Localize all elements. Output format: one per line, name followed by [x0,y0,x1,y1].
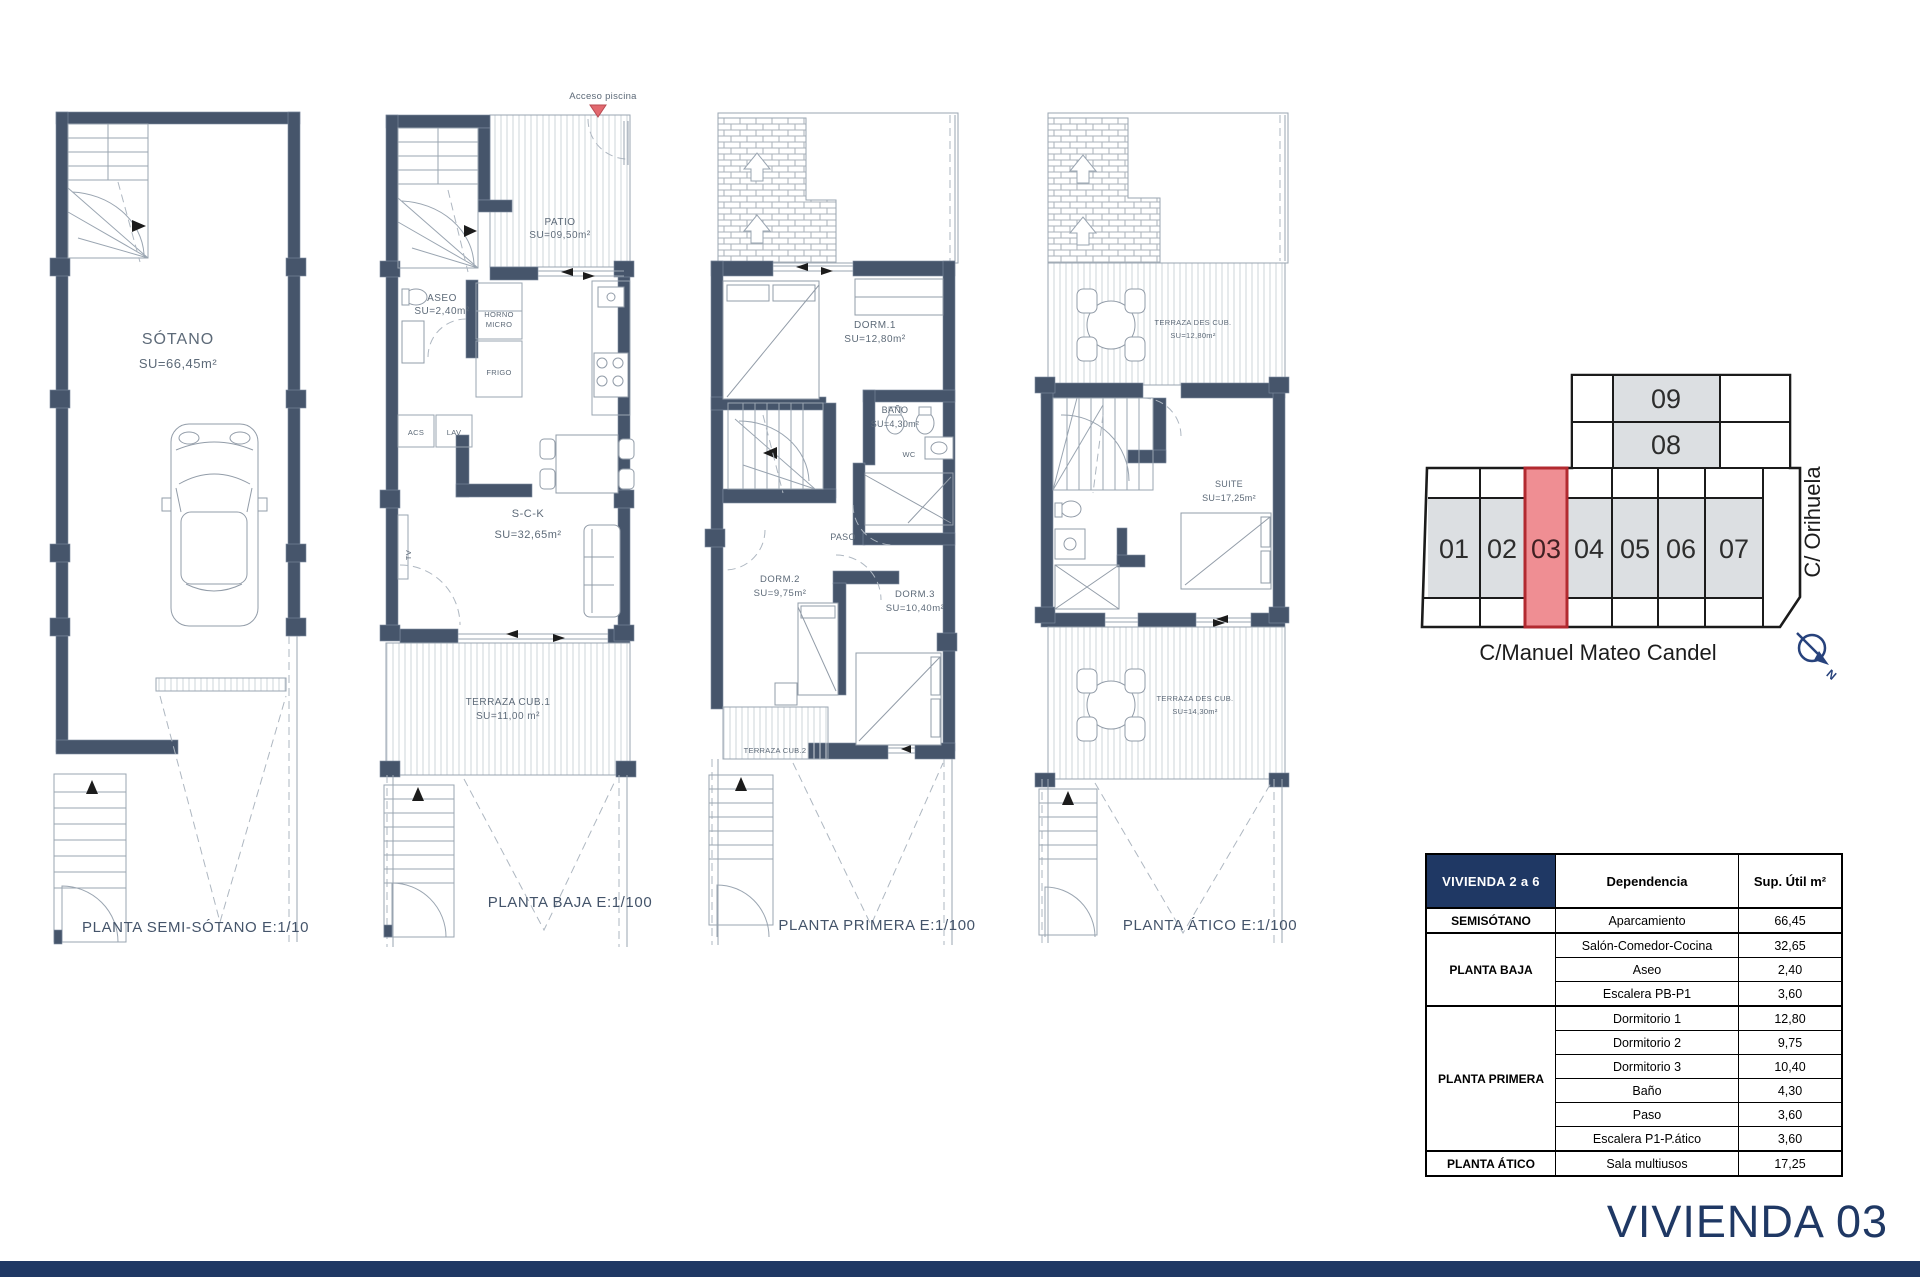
room-label-terraza-inf: TERRAZA DES CUB. [1157,694,1234,703]
room-label-suite: SUITE [1215,479,1243,489]
room-cell: Sala multiusos [1556,1151,1739,1176]
ramp-zone [384,775,627,947]
floor-name-cell: PLANTA PRIMERA [1426,1006,1556,1151]
room-cell: Dormitorio 1 [1556,1006,1739,1031]
room-area-terraza1: SU=11,00 m² [476,711,540,722]
plan-caption-baja: PLANTA BAJA E:1/100 [488,894,653,911]
project-title: VIVIENDA 03 [1607,1196,1888,1248]
floorplan-baja: Acceso piscina PATIO SU=09,50m² ASEO SU=… [378,85,668,965]
area-cell: 3,60 [1739,1127,1843,1152]
room-area-dorm3: SU=10,40m² [886,603,945,614]
area-cell: 17,25 [1739,1151,1843,1176]
dorm3-furniture [856,653,941,745]
room-cell: Salón-Comedor-Cocina [1556,933,1739,958]
label-acs: ACS [408,428,424,437]
room-area-sotano: SU=66,45m² [139,356,218,371]
label-wc: WC [902,450,915,459]
room-label-terraza1: TERRAZA CUB.1 [466,697,551,708]
area-cell: 66,45 [1739,908,1843,933]
room-label-dorm1: DORM.1 [854,320,896,331]
plan-caption-primera: PLANTA PRIMERA E:1/100 [778,917,975,934]
terraza-cub1 [380,643,636,777]
areas-table: VIVIENDA 2 a 6 Dependencia Sup. Útil m² … [1425,853,1843,1177]
kitchen [476,281,630,415]
unit-number-02: 02 [1487,534,1517,564]
unit-number-09: 09 [1651,384,1681,414]
stairs [1053,398,1153,493]
floorplan-primera: DORM.1 SU=12,80m² WC BAÑO SU=4,30m² PASO… [703,85,993,965]
stairs-upper [68,124,148,262]
room-label-terraza2: TERRAZA CUB.2 [744,746,807,755]
unit-number-01: 01 [1439,534,1469,564]
room-area-dorm1: SU=12,80m² [844,334,906,345]
floor-name-cell: SEMISÓTANO [1426,908,1556,933]
floor-name-cell: PLANTA BAJA [1426,933,1556,1006]
car [162,424,267,626]
room-cell: Aseo [1556,958,1739,982]
room-cell: Dormitorio 3 [1556,1055,1739,1079]
area-cell: 12,80 [1739,1006,1843,1031]
room-area-terraza-sup: SU=12,80m² [1170,331,1216,340]
suite-furniture [1181,513,1271,589]
unit-number-05: 05 [1620,534,1650,564]
acceso-piscina-label: Acceso piscina [569,91,637,102]
room-area-patio: SU=09,50m² [529,230,591,241]
stairs [728,403,823,493]
area-cell: 2,40 [1739,958,1843,982]
room-label-paso: PASO [830,532,856,542]
table-header-area: Sup. Útil m² [1739,854,1843,908]
room-cell: Escalera PB-P1 [1556,982,1739,1007]
room-area-dorm2: SU=9,75m² [754,588,807,599]
room-cell: Dormitorio 2 [1556,1031,1739,1055]
floorplan-semisotano: SÓTANO SU=66,45m² PLANTA SEMI-SÓTANO E:1… [48,92,308,953]
label-frigo: FRIGO [486,368,511,377]
table-header-room: Dependencia [1556,854,1739,908]
terraza-inferior [1035,627,1289,787]
room-area-suite: SU=17,25m² [1202,493,1256,503]
area-cell: 10,40 [1739,1055,1843,1079]
label-micro: MICRO [486,320,513,329]
unit-number-04: 04 [1574,534,1604,564]
north-arrow: N [1797,633,1839,683]
bath-fixtures [1055,501,1119,609]
unit-number-08: 08 [1651,430,1681,460]
table-header-unit: VIVIENDA 2 a 6 [1426,854,1556,908]
footer-bar [0,1261,1920,1277]
area-cell: 4,30 [1739,1079,1843,1103]
room-label-sotano: SÓTANO [142,329,214,348]
plan-caption-semisotano: PLANTA SEMI-SÓTANO E:1/100 [82,919,308,936]
label-lav: LAV [447,428,462,437]
north-label: N [1824,667,1840,683]
street-label-right: C/ Orihuela [1800,466,1825,578]
room-label-dorm2: DORM.2 [760,574,800,585]
room-cell: Escalera P1-P.ático [1556,1127,1739,1152]
site-plan: 09 08 01 02 03 04 05 06 07 C/ Orihuela C… [1408,352,1908,697]
walls [50,112,306,754]
room-area-terraza-inf: SU=14,30m² [1172,707,1218,716]
room-area-bano: SU=4,30m² [871,419,919,429]
room-area-aseo: SU=2,40m² [414,306,470,317]
floor-name-cell: PLANTA ÁTICO [1426,1151,1556,1176]
stairs-upper [398,128,478,272]
roof [1048,113,1288,263]
dorm2-furniture [775,603,838,705]
room-cell: Paso [1556,1103,1739,1127]
label-tv: TV [404,550,413,560]
unit-number-03: 03 [1531,534,1561,564]
floorplan-atico: TERRAZA DES CUB. SU=12,80m² SUITE SU=17,… [1033,85,1323,965]
roof [718,113,958,263]
dorm1-furniture [723,279,943,399]
area-cell: 3,60 [1739,982,1843,1007]
room-area-sck: SU=32,65m² [494,529,561,541]
room-label-dorm3: DORM.3 [895,589,935,600]
garage-door-and-ramp [156,636,297,942]
room-label-patio: PATIO [544,217,575,228]
room-label-bano: BAÑO [882,405,909,415]
area-cell: 3,60 [1739,1103,1843,1127]
street-label-bottom: C/Manuel Mateo Candel [1479,640,1716,665]
area-cell: 32,65 [1739,933,1843,958]
label-horno: HORNO [484,310,513,319]
plan-caption-atico: PLANTA ÁTICO E:1/100 [1123,917,1297,934]
unit-number-07: 07 [1719,534,1749,564]
room-cell: Aparcamiento [1556,908,1739,933]
area-cell: 9,75 [1739,1031,1843,1055]
room-cell: Baño [1556,1079,1739,1103]
patio [490,115,630,267]
unit-number-06: 06 [1666,534,1696,564]
room-label-aseo: ASEO [427,293,457,304]
room-label-terraza-sup: TERRAZA DES CUB. [1155,318,1232,327]
room-label-sck: S-C-K [512,508,545,520]
